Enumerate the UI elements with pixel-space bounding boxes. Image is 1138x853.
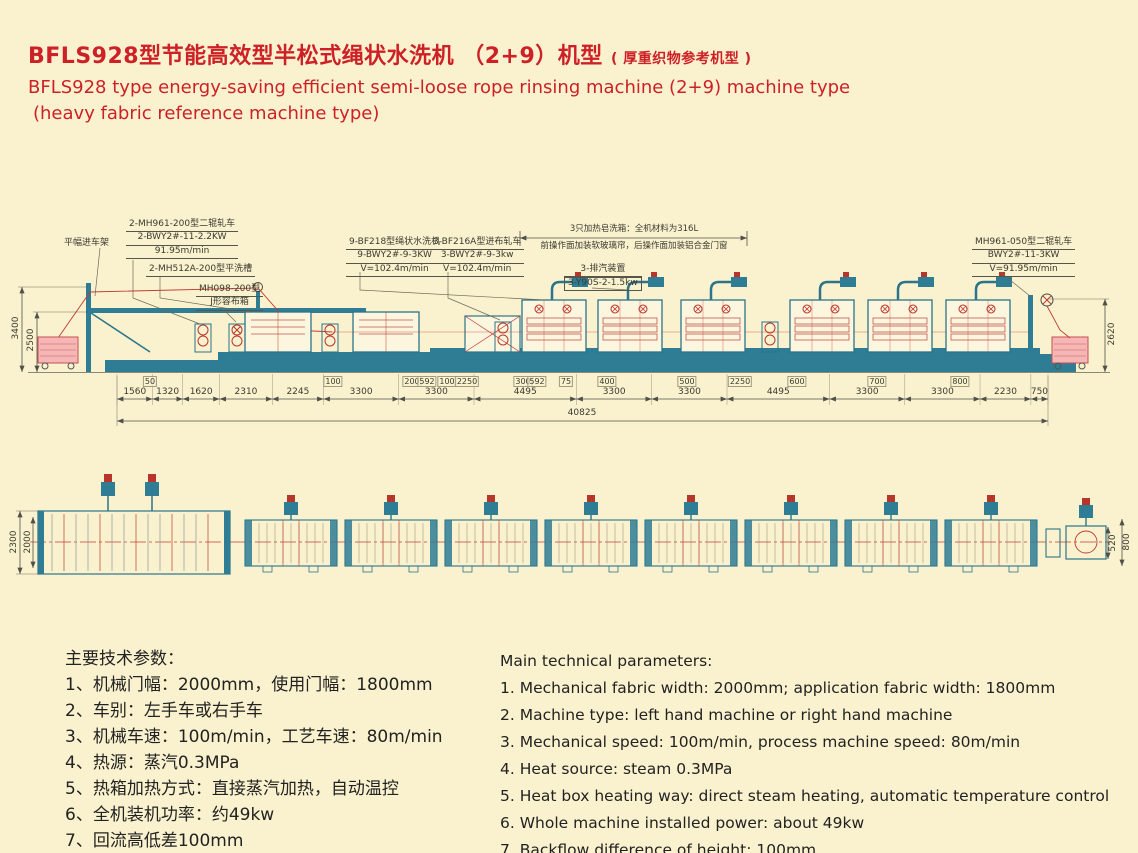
dim-label: 2245	[286, 387, 309, 397]
rope-washing-box	[790, 272, 856, 352]
callout-exhaust: 3-排汽装置 3-Y90S-2-1.5kw	[564, 264, 642, 291]
params-zh-item: 4、热源：蒸汽0.3MPa	[65, 750, 443, 776]
rope-washing-box	[681, 272, 747, 352]
dim-label: 400	[597, 376, 616, 387]
dim-label: 100	[323, 376, 342, 387]
params-en-item: 3. Mechanical speed: 100m/min, process m…	[500, 729, 1109, 756]
dim-label: 1620	[190, 387, 213, 397]
dim-label: 3300	[425, 387, 448, 397]
dim-label: 592	[417, 376, 436, 387]
dim-label: 2310	[235, 387, 258, 397]
rope-washing-box	[868, 272, 934, 352]
params-en-item: 2. Machine type: left hand machine or ri…	[500, 702, 1109, 729]
dim-elev-2500: 2500	[26, 329, 36, 352]
params-zh-item: 6、全机装机功率：约49kw	[65, 802, 443, 828]
callout-soap-note-2: 前操作面加装软玻璃帘，后操作面加装铝合金门窗	[492, 241, 776, 252]
rope-washing-box	[946, 272, 1012, 352]
plan-exit-unit	[1046, 498, 1106, 559]
plan-machine-modules	[245, 495, 1037, 572]
dim-elev-3400: 3400	[11, 317, 21, 340]
dim-plan-2300: 2300	[9, 531, 19, 554]
params-zh-item: 5、热箱加热方式：直接蒸汽加热，自动温控	[65, 776, 443, 802]
callout-flat-washer: 2-MH512A-200型平洗槽	[146, 264, 255, 277]
plan-module	[345, 495, 437, 572]
callout-mangle-right: MH961-050型二辊轧车 BWY2#-11-3KW V=91.95m/min	[972, 237, 1075, 277]
params-en-item: 6. Whole machine installed power: about …	[500, 810, 1109, 837]
dim-label: 50	[143, 376, 157, 387]
title-zh-note: ( 厚重织物参考机型 )	[611, 51, 752, 67]
params-zh-heading: 主要技术参数：	[65, 646, 443, 672]
dim-label: 2250	[728, 376, 752, 387]
callout-mangle-left: 2-MH961-200型二辊轧车 2-BWY2#-11-2.2KW 91.95m…	[126, 219, 238, 259]
dim-label: 3300	[931, 387, 954, 397]
dim-label: 3300	[856, 387, 879, 397]
params-zh-item: 1、机械门幅：2000mm，使用门幅：1800mm	[65, 672, 443, 698]
plan-module	[245, 495, 337, 572]
params-zh: 主要技术参数： 1、机械门幅：2000mm，使用门幅：1800mm 2、车别：左…	[65, 646, 443, 853]
dim-total-40825: 40825	[568, 408, 597, 418]
entry-cart	[38, 337, 78, 369]
j-box-unit	[465, 316, 520, 352]
page: BFLS928型节能高效型半松式绳状水洗机 （2+9）机型 ( 厚重织物参考机型…	[0, 0, 1138, 853]
dim-label: 100	[437, 376, 456, 387]
params-en-item: 1. Mechanical fabric width: 2000mm; appl…	[500, 675, 1109, 702]
dim-label: 3300	[603, 387, 626, 397]
params-zh-item: 3、机械车速：100m/min，工艺车速：80m/min	[65, 724, 443, 750]
dim-label: 3300	[350, 387, 373, 397]
plan-entry-frame	[38, 474, 230, 574]
params-zh-item: 7、回流高低差100mm	[65, 828, 443, 853]
page-title-en: BFLS928 type energy-saving efficient sem…	[28, 77, 850, 98]
params-en: Main technical parameters: 1. Mechanical…	[500, 648, 1109, 853]
callout-rope-washer: 9-BF218型绳状水洗机 9-BWY2#-9-3KW V=102.4m/min	[346, 237, 443, 277]
dim-label: 750	[1031, 387, 1048, 397]
title-zh-main: BFLS928型节能高效型半松式绳状水洗机 （2+9）机型	[28, 44, 603, 69]
dim-label: 2250	[455, 376, 479, 387]
params-en-item: 7. Backflow difference of height: 100mm	[500, 837, 1109, 853]
dim-plan-520: 520	[1108, 534, 1118, 551]
dim-label: 700	[867, 376, 886, 387]
params-zh-item: 2、车别：左手车或右手车	[65, 698, 443, 724]
title-block: BFLS928型节能高效型半松式绳状水洗机 （2+9）机型 ( 厚重织物参考机型…	[28, 38, 850, 124]
plan-module	[845, 495, 937, 572]
callout-j-box: MH098-200型 J形容布箱	[196, 284, 263, 311]
dim-label: 4495	[767, 387, 790, 397]
callout-soap-note-1: 3只加热皂洗箱：全机材料为316L	[510, 224, 758, 235]
dim-label: 592	[527, 376, 546, 387]
dim-plan-800: 800	[1122, 533, 1132, 550]
params-en-item: 4. Heat source: steam 0.3MPa	[500, 756, 1109, 783]
page-title-zh: BFLS928型节能高效型半松式绳状水洗机 （2+9）机型 ( 厚重织物参考机型…	[28, 38, 850, 70]
dim-label: 1320	[156, 387, 179, 397]
dim-label: 4495	[514, 387, 537, 397]
dim-label: 3300	[678, 387, 701, 397]
plan-module	[945, 495, 1037, 572]
callout-entry-frame: 平幅进车架	[64, 238, 109, 249]
dim-plan-2000: 2000	[23, 531, 33, 554]
plan-module	[645, 495, 737, 572]
plan-module	[445, 495, 537, 572]
dim-label: 800	[950, 376, 969, 387]
dim-label: 75	[559, 376, 573, 387]
params-en-heading: Main technical parameters:	[500, 648, 1109, 675]
dim-elev-2620: 2620	[1107, 323, 1117, 346]
dim-label: 2230	[994, 387, 1017, 397]
plan-module	[545, 495, 637, 572]
page-title-en-2: (heavy fabric reference machine type)	[28, 103, 850, 124]
dim-label: 500	[677, 376, 696, 387]
plan-view	[16, 474, 1122, 574]
plan-module	[745, 495, 837, 572]
dim-label: 600	[787, 376, 806, 387]
dim-label: 1560	[123, 387, 146, 397]
params-en-item: 5. Heat box heating way: direct steam he…	[500, 783, 1109, 810]
